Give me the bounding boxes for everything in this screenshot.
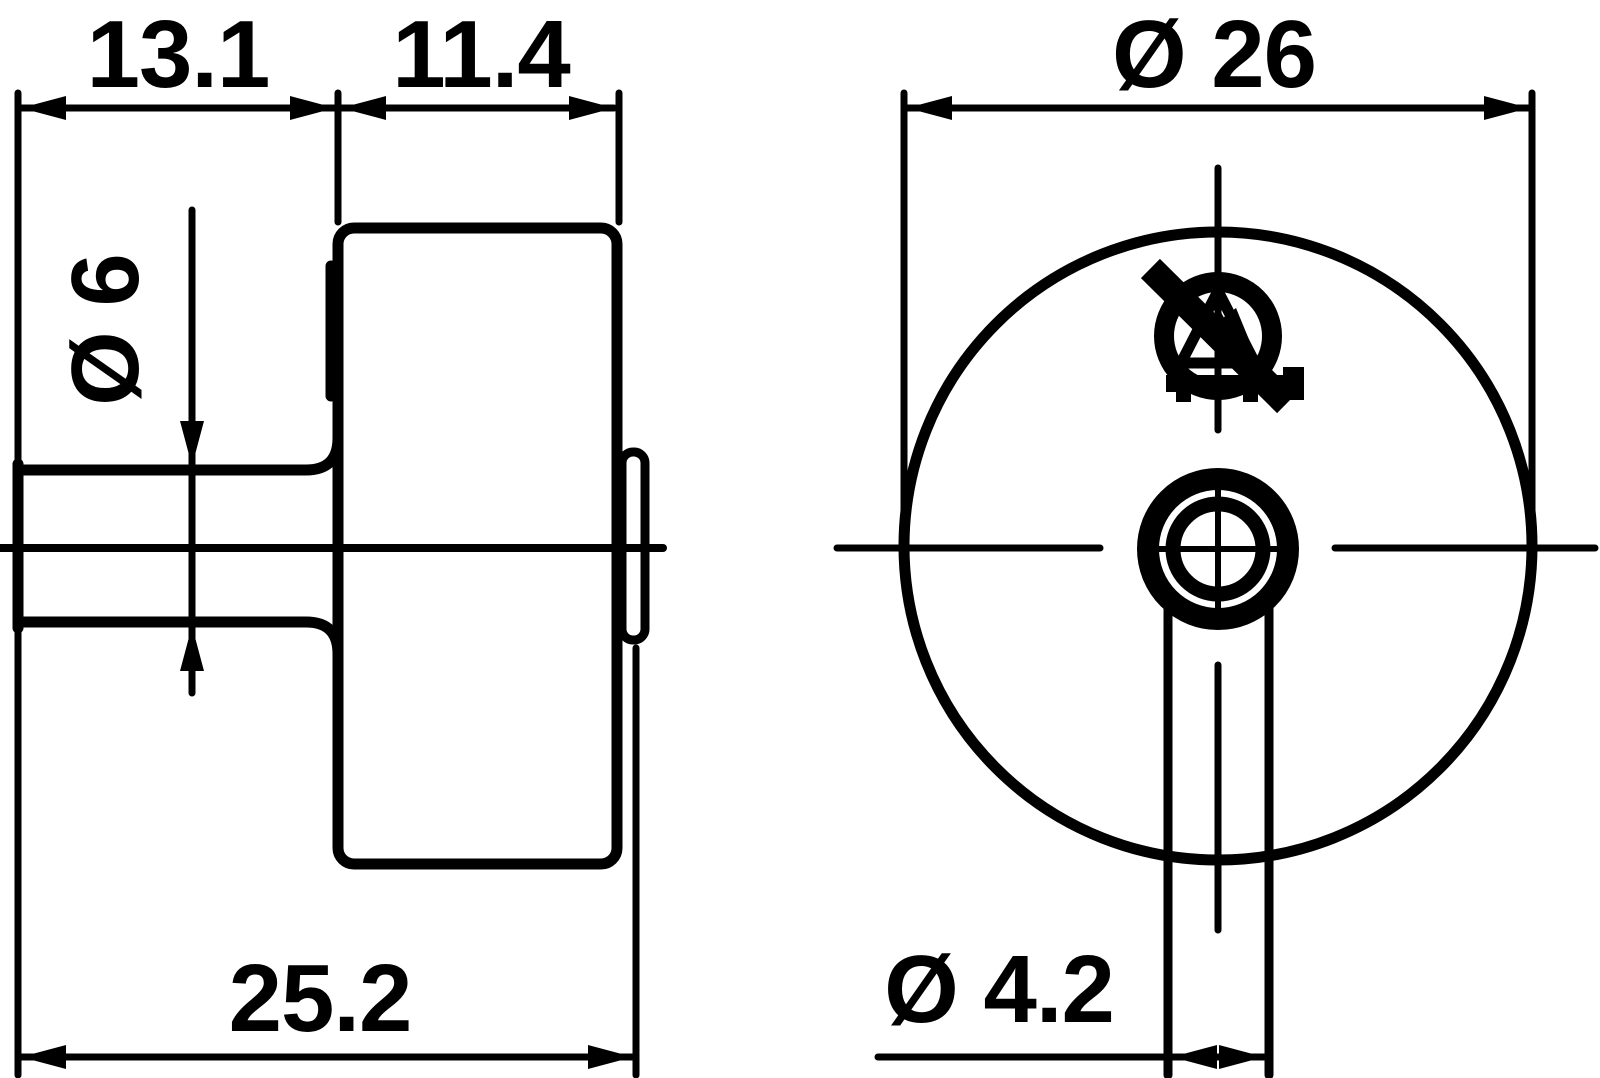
dim-label-body-depth: 11.4 (392, 7, 570, 103)
technical-drawing-canvas: 13.1 11.4 Ø 6 25.2 Ø 26 Ø 4.2 (0, 0, 1600, 1078)
dim-label-outer-diameter: Ø 26 (1112, 7, 1316, 103)
dim-label-hole-diameter: Ø 4.2 (884, 942, 1114, 1038)
side-view (0, 93, 663, 1075)
side-view-shaft-top-edge (18, 438, 338, 470)
side-view-shaft-bottom-edge (18, 622, 338, 654)
dim-label-overall-length: 25.2 (229, 951, 412, 1047)
dim-label-shaft-diameter: Ø 6 (58, 254, 154, 406)
dim-label-shaft-length: 13.1 (87, 7, 270, 103)
front-view (837, 93, 1595, 1075)
drawing-linework (0, 0, 1600, 1078)
